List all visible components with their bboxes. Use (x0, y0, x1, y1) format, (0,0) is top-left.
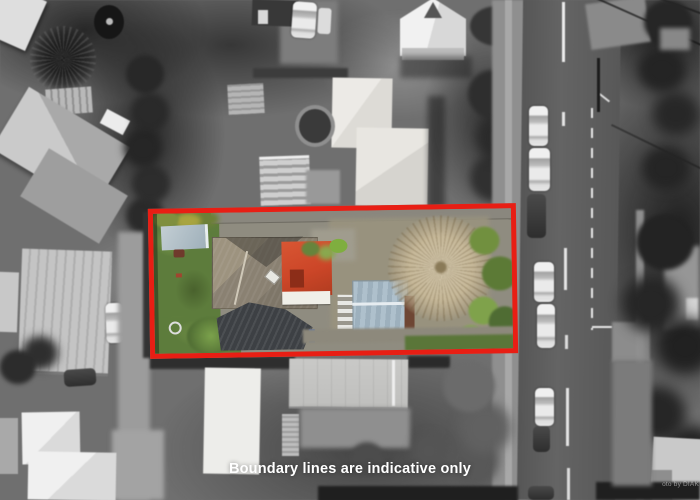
parked-car (537, 304, 555, 348)
tree-mass-right-lower (636, 214, 694, 270)
photo-credit-watermark: oto by DIAK (662, 481, 699, 488)
clearing (660, 28, 690, 50)
parked-ute (534, 262, 554, 302)
white-veranda-roof (282, 291, 330, 305)
driveway-crossing (612, 322, 650, 362)
tree-row (126, 55, 164, 93)
large-house-shadow (428, 96, 445, 208)
hedge-line (253, 68, 348, 78)
power-pole (597, 58, 600, 112)
road-centre-dash (564, 248, 567, 290)
parked-car (535, 388, 554, 426)
road-centre-dash (566, 388, 569, 446)
road-centre-dash (562, 112, 565, 126)
large-white-house-wing (355, 127, 428, 206)
striped-carport (259, 155, 311, 206)
dark-roof-white-part (258, 10, 268, 24)
property-boundary (148, 203, 518, 359)
textured-roof (282, 414, 299, 456)
large-shed-roof (289, 358, 408, 409)
roof-left-edge (0, 272, 19, 333)
red-roof-chimney (290, 269, 304, 287)
spa-pool-center (106, 18, 113, 25)
white-building-bottom (203, 368, 261, 475)
parking-bay-line (591, 108, 593, 330)
ground-patch (300, 408, 410, 448)
parked-van (529, 148, 550, 191)
shrub (482, 256, 519, 291)
blue-shed-roof (161, 224, 209, 250)
shrub (469, 226, 499, 254)
road-centre-dash (565, 335, 568, 349)
garden-toy (176, 273, 182, 277)
aerial-photo: Boundary lines are indicative only oto b… (0, 0, 700, 500)
gray-tree (443, 360, 495, 412)
parked-car-dark (63, 368, 96, 387)
hedge-bottom (318, 486, 518, 500)
parked-car (529, 106, 548, 146)
palm-tree (30, 26, 96, 92)
garden-shed (227, 83, 265, 117)
shed-seam (392, 360, 395, 406)
parked-car-dark (533, 426, 550, 452)
trailer (317, 8, 331, 35)
road-centre-line (562, 2, 565, 62)
parked-car-dark (528, 486, 554, 500)
round-pool (295, 105, 335, 147)
road (517, 0, 621, 500)
white-object (686, 298, 698, 320)
grass-strip (405, 334, 515, 352)
picnic-table (173, 249, 184, 257)
parking-bay-tick (592, 326, 612, 328)
house-shadow (400, 56, 472, 78)
dark-bush (0, 350, 36, 384)
boundary-disclaimer-text: Boundary lines are indicative only (0, 461, 700, 477)
carport-side (306, 170, 340, 204)
parked-car-dark (527, 194, 546, 238)
hedge-below-property (408, 356, 450, 368)
parked-car (291, 1, 317, 39)
paddling-pool (169, 321, 182, 334)
